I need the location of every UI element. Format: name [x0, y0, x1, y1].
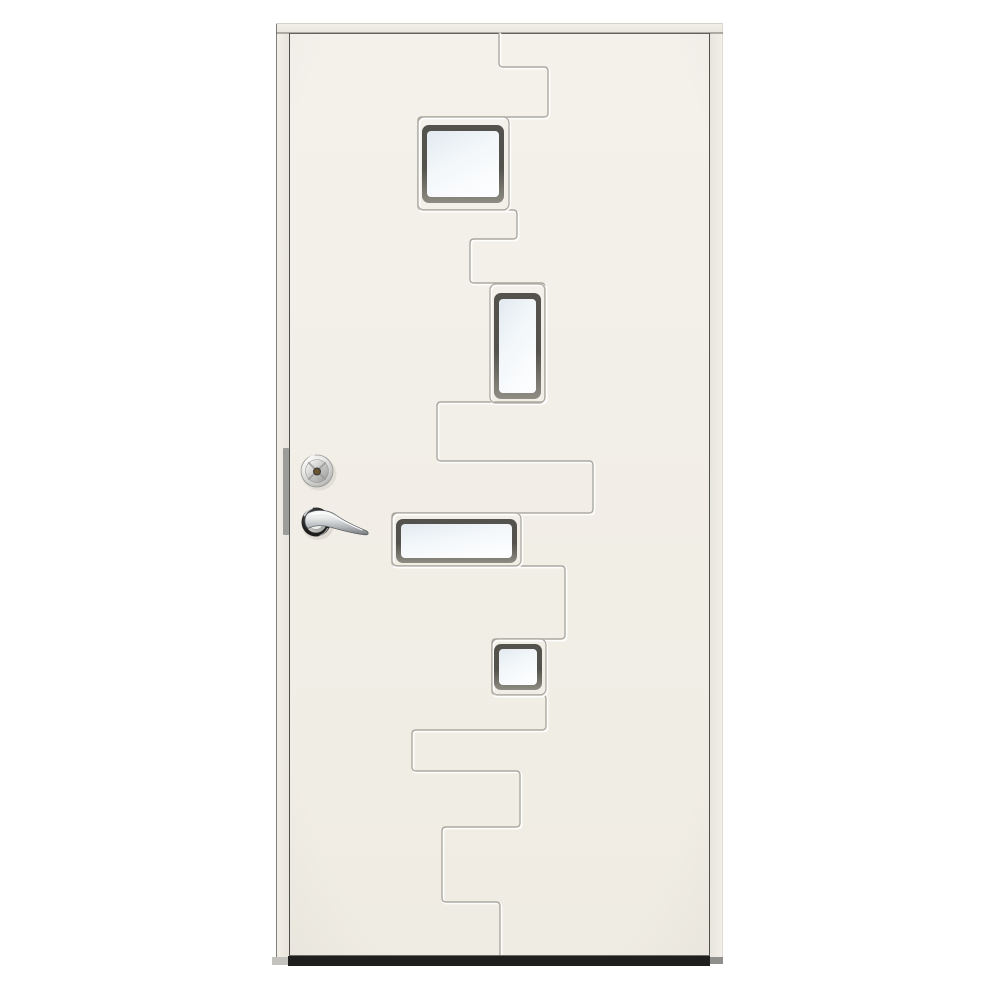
strike-plate: [283, 448, 289, 535]
door-product-image: [0, 0, 1000, 1000]
keyhole: [314, 468, 321, 475]
window-1-glass: [427, 131, 499, 197]
window-2-glass: [499, 299, 536, 393]
window-3: [392, 513, 522, 567]
threshold-bar: [288, 956, 710, 966]
window-3-glass: [401, 524, 512, 558]
threshold-left-cap: [272, 957, 288, 965]
threshold-right-cap: [710, 957, 723, 964]
window-4: [492, 639, 547, 696]
window-1: [418, 117, 510, 211]
door-illustration: [0, 0, 1000, 1000]
window-4-glass: [499, 649, 537, 685]
door-frame-right-jamb: [710, 33, 723, 958]
window-2: [490, 284, 546, 404]
door-frame-head: [276, 23, 723, 33]
